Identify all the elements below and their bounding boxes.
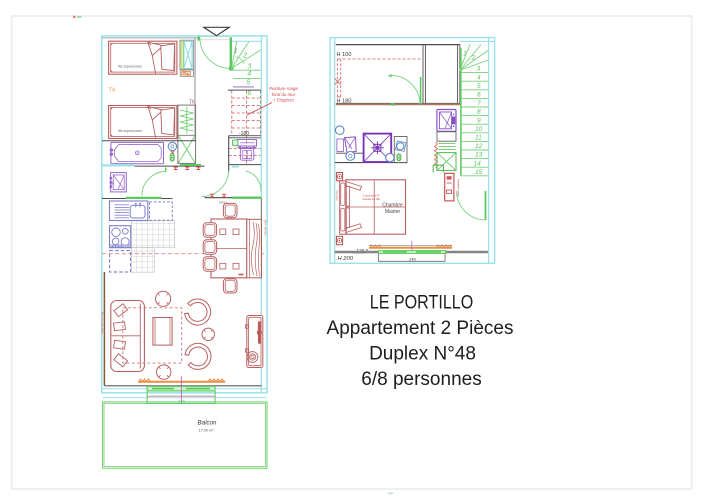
svg-text:11: 11 (475, 135, 482, 142)
svg-text:13: 13 (475, 152, 483, 159)
svg-text:Peinture rouge: Peinture rouge (269, 86, 298, 91)
svg-text:3: 3 (477, 66, 481, 73)
svg-text:Balcon: Balcon (198, 420, 217, 427)
svg-text:8: 8 (477, 109, 481, 116)
svg-text:Duplex N°48: Duplex N°48 (369, 344, 476, 365)
svg-text:7: 7 (477, 100, 481, 107)
svg-text:lits superposés: lits superposés (118, 65, 142, 69)
svg-text:1: 1 (463, 51, 467, 58)
svg-text:240: 240 (178, 398, 185, 403)
svg-text:T4: T4 (109, 88, 116, 94)
svg-text:PM rouge: PM rouge (335, 191, 338, 202)
svg-text:fond du mur: fond du mur (272, 92, 296, 97)
svg-text:2: 2 (242, 53, 247, 60)
svg-text:Chambre: Chambre (382, 203, 403, 209)
svg-text:Mur intérieur: Mur intérieur (263, 220, 267, 236)
svg-text:Master: Master (385, 209, 401, 215)
svg-text:10: 10 (475, 126, 483, 133)
svg-text:matelas en 180: matelas en 180 (362, 197, 380, 201)
svg-text:LE PORTILLO: LE PORTILLO (370, 293, 474, 314)
svg-text:-180: -180 (239, 131, 249, 137)
svg-text:H 100: H 100 (337, 52, 352, 58)
svg-text:Appartement 2 Pièces: Appartement 2 Pièces (327, 318, 514, 339)
svg-text:1: 1 (234, 48, 238, 55)
svg-text:6: 6 (247, 90, 251, 97)
svg-text:6: 6 (477, 92, 481, 99)
svg-text:lits superposés: lits superposés (118, 129, 142, 133)
svg-text:12: 12 (475, 143, 483, 150)
svg-text:4: 4 (247, 71, 251, 78)
svg-text:9: 9 (477, 117, 481, 124)
svg-text:14: 14 (474, 160, 482, 167)
svg-text:+ Etagères: + Etagères (273, 98, 295, 103)
svg-text:15: 15 (475, 169, 483, 176)
svg-text:17.50 m²: 17.50 m² (199, 429, 215, 433)
svg-text:Penderie rouge: Penderie rouge (457, 179, 461, 197)
svg-text:5: 5 (246, 79, 250, 86)
svg-text:H 200: H 200 (338, 256, 354, 262)
svg-text:240: 240 (409, 256, 416, 261)
svg-text:2 sommiers 90: 2 sommiers 90 (362, 194, 380, 198)
svg-text:5: 5 (477, 83, 481, 90)
svg-text:2: 2 (471, 55, 476, 62)
svg-text:6/8 personnes: 6/8 personnes (361, 369, 481, 390)
svg-text:4: 4 (477, 74, 481, 81)
svg-text:Mur tissu gris blanc: Mur tissu gris blanc (101, 312, 105, 335)
